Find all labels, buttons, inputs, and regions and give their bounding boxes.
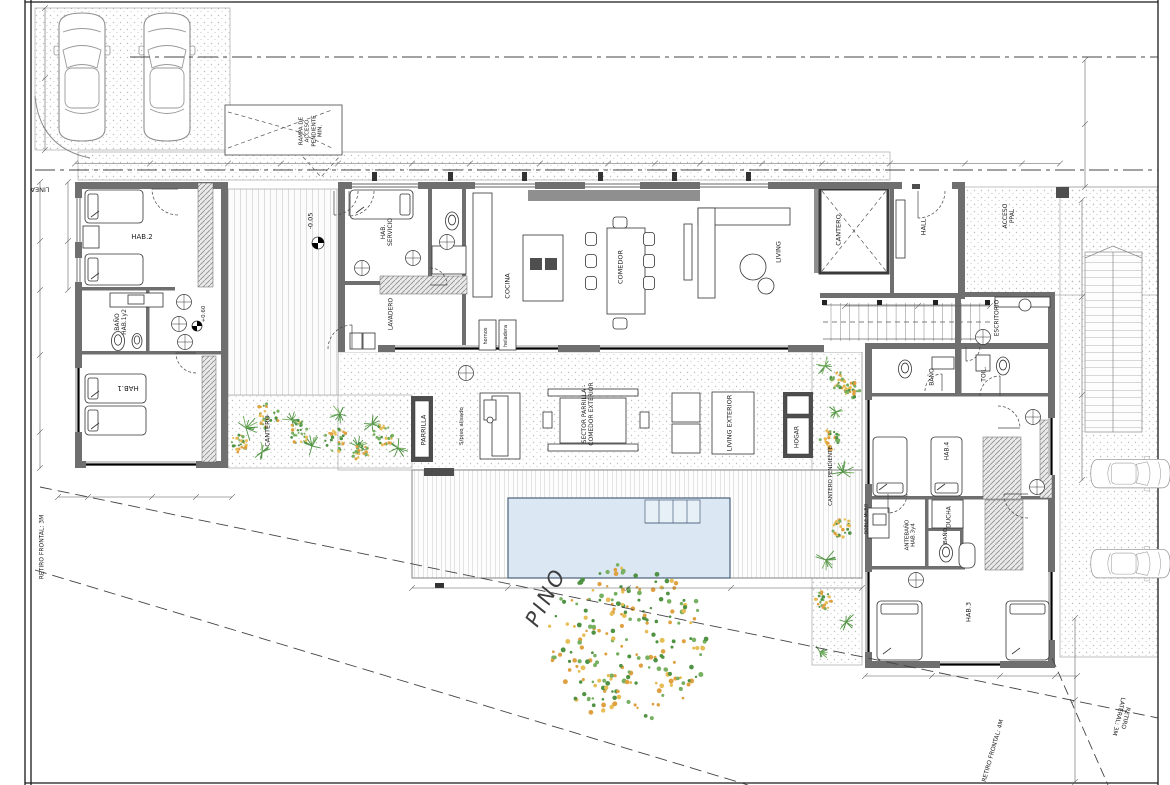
- toilet-icon: [112, 332, 125, 351]
- keynote-tag: [448, 172, 453, 181]
- keynote-tag: [746, 172, 751, 181]
- chair-icon: [586, 255, 597, 268]
- keynote-tag: [372, 172, 377, 181]
- chair-icon: [644, 233, 655, 246]
- keynote-tag: [672, 172, 677, 181]
- tub-icon: [959, 543, 975, 568]
- chair-icon: [644, 277, 655, 290]
- bed-icon: [350, 190, 413, 219]
- chair-icon: [586, 233, 597, 246]
- keynote-circle-icon: [1026, 410, 1041, 425]
- keynote-circle-icon: [355, 261, 370, 276]
- car-icon: [54, 13, 110, 141]
- keynote-circle-icon: [172, 317, 187, 332]
- bed-icon: [85, 190, 143, 223]
- chair-icon: [613, 318, 627, 329]
- keynote-circle-icon: [976, 330, 991, 345]
- keynote-circle-icon: [178, 335, 193, 350]
- keynote-circle-icon: [177, 295, 192, 310]
- floor-plan-drawing: [0, 0, 1170, 785]
- keynote-circle-icon: [1030, 480, 1045, 495]
- bed-icon: [873, 437, 907, 496]
- sidewalk: [78, 152, 890, 180]
- bed-icon: [85, 254, 143, 285]
- floor-plan-sheet: LINEA RAMPA DE ACCESO PENDIENTE MIN. HAB…: [0, 0, 1170, 785]
- keynote-circle-icon: [459, 366, 474, 381]
- pool-steps: [645, 500, 700, 523]
- keynote-circle-icon: [406, 251, 421, 266]
- chair-icon: [586, 277, 597, 290]
- right-pergola: [1085, 252, 1142, 432]
- chair-icon: [613, 217, 627, 228]
- keynote-circle-icon: [909, 573, 924, 588]
- bed-icon: [1006, 601, 1049, 660]
- cantero-planter: [814, 189, 888, 273]
- bed-icon: [85, 406, 146, 435]
- chair-icon: [644, 255, 655, 268]
- level-marker-icon: [312, 237, 324, 249]
- keynote-circle-icon: [440, 235, 455, 250]
- level-marker-icon: [192, 321, 202, 331]
- bed-icon: [85, 374, 146, 403]
- bed-icon: [931, 437, 962, 496]
- keynote-tag: [435, 583, 444, 588]
- car-icon: [139, 13, 195, 141]
- bed-icon: [877, 601, 922, 660]
- entry-deck: [228, 189, 338, 395]
- car-icon: [1091, 546, 1170, 581]
- car-icon: [1091, 456, 1170, 491]
- keynote-tag: [522, 172, 527, 181]
- keynote-tag: [598, 172, 603, 181]
